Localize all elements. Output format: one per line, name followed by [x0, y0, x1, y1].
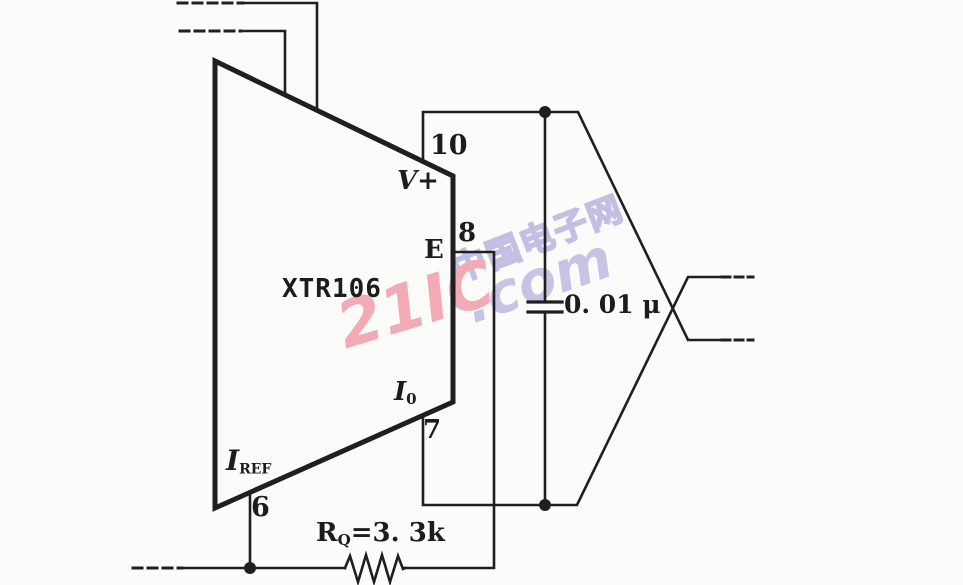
pin6-name-iref: IREF — [226, 447, 271, 477]
circuit-svg — [0, 0, 963, 585]
resistor-symbol-letter: R — [316, 518, 338, 548]
resistor-value: =3. 3k — [351, 518, 445, 548]
pin10-number: 10 — [430, 132, 468, 159]
capacitor-icon — [528, 302, 562, 312]
iref-symbol: I — [226, 444, 239, 477]
resistor-subscript: Q — [338, 531, 351, 549]
pin10-name-vplus: V+ — [397, 168, 439, 194]
junction-dot-top — [539, 106, 551, 118]
pin7-number: 7 — [423, 417, 441, 443]
junction-dot-bottom — [539, 499, 551, 511]
resistor-value-label: RQ=3. 3k — [316, 520, 445, 548]
io-subscript: 0 — [406, 390, 417, 408]
pin6-number: 6 — [251, 494, 270, 521]
pin7-name-io: I0 — [394, 379, 417, 407]
iref-subscript: REF — [239, 462, 271, 478]
ic-part-number: XTR106 — [282, 276, 382, 302]
pin8-name-e: E — [424, 237, 444, 263]
junction-dot-iref — [244, 562, 256, 574]
pin8-number: 8 — [458, 220, 476, 246]
io-symbol: I — [394, 377, 406, 407]
capacitor-value-label: 0. 01 μ — [564, 292, 661, 317]
circuit-diagram: 中国电子网 21IC .com — [0, 0, 963, 585]
resistor-icon — [345, 555, 405, 582]
